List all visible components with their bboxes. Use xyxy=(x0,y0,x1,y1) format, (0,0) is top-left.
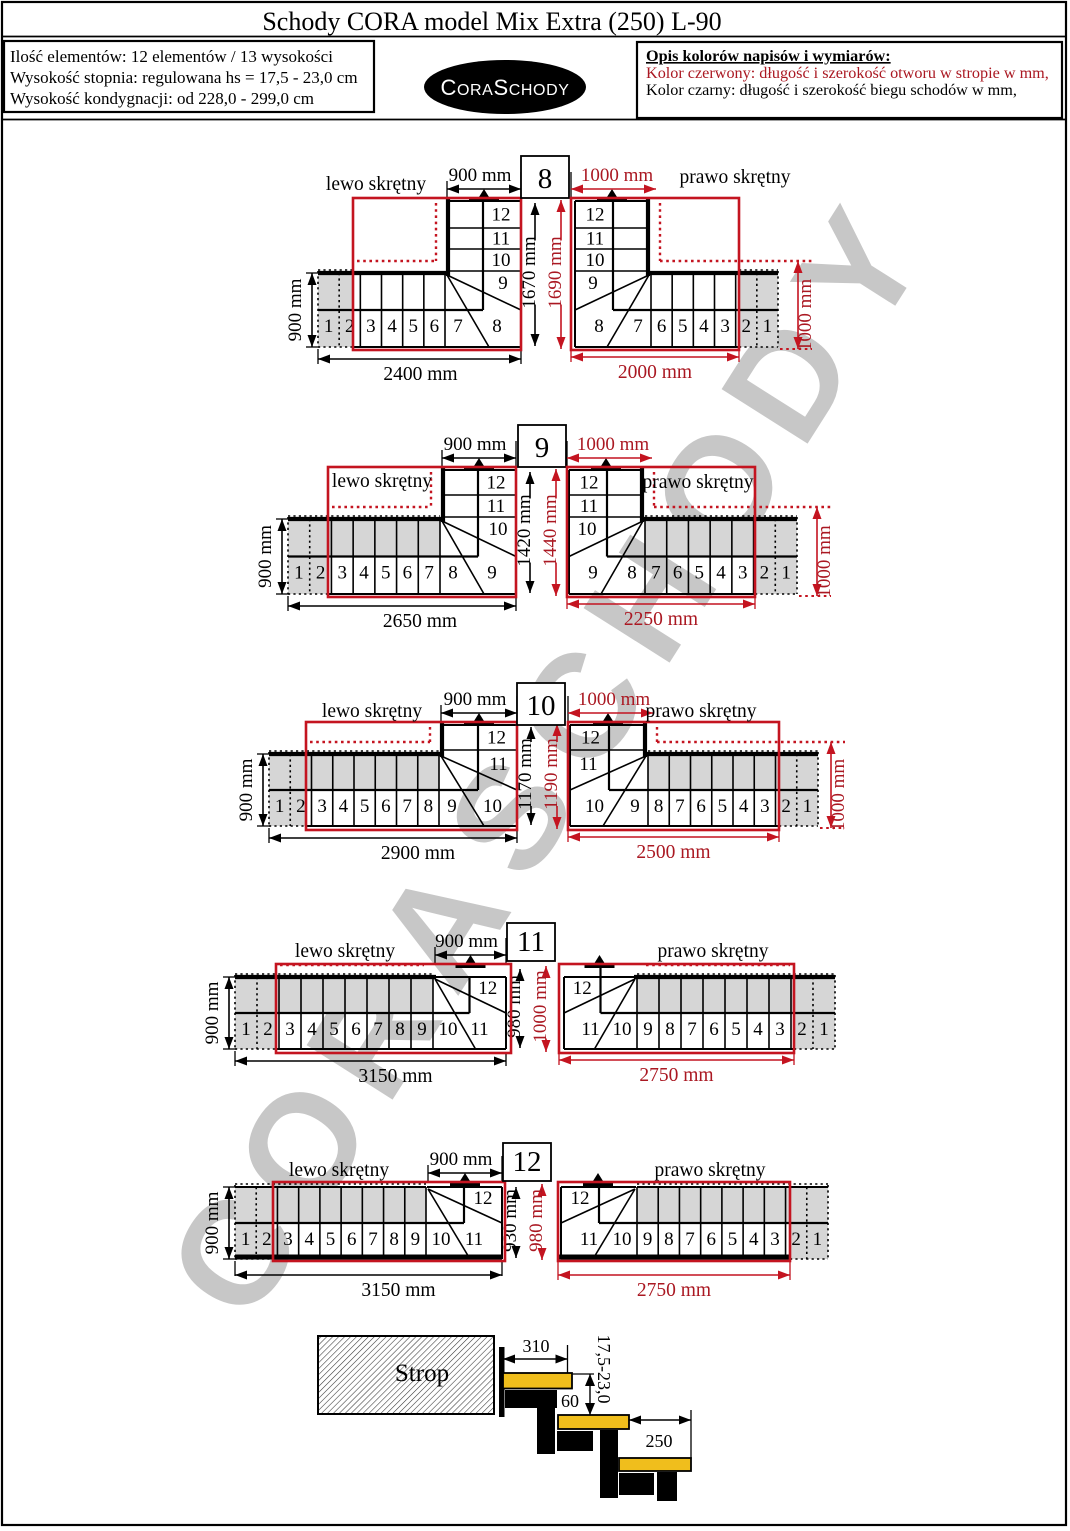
svg-text:11: 11 xyxy=(517,926,545,958)
svg-text:4: 4 xyxy=(739,796,749,817)
svg-text:9: 9 xyxy=(588,273,598,294)
svg-text:980 mm: 980 mm xyxy=(504,975,525,1038)
svg-text:7: 7 xyxy=(373,1019,383,1040)
svg-text:900 mm: 900 mm xyxy=(435,931,498,952)
svg-text:4: 4 xyxy=(699,316,709,337)
svg-text:11: 11 xyxy=(489,754,507,775)
svg-text:3150 mm: 3150 mm xyxy=(361,1280,435,1301)
svg-text:3: 3 xyxy=(770,1229,780,1250)
svg-text:2: 2 xyxy=(296,796,306,817)
svg-text:lewo skrętny: lewo skrętny xyxy=(289,1160,389,1181)
svg-text:6: 6 xyxy=(347,1229,357,1250)
svg-text:2400 mm: 2400 mm xyxy=(383,364,457,385)
svg-text:6: 6 xyxy=(403,563,413,584)
svg-text:12: 12 xyxy=(487,473,506,494)
svg-text:2: 2 xyxy=(262,1229,272,1250)
svg-text:lewo skrętny: lewo skrętny xyxy=(295,941,395,962)
svg-text:2: 2 xyxy=(263,1019,273,1040)
svg-text:900 mm: 900 mm xyxy=(444,689,507,710)
svg-text:250: 250 xyxy=(646,1431,673,1451)
svg-text:9: 9 xyxy=(498,273,508,294)
svg-text:4: 4 xyxy=(749,1229,759,1250)
svg-text:8: 8 xyxy=(665,1019,675,1040)
svg-text:11: 11 xyxy=(579,754,597,775)
svg-text:12: 12 xyxy=(474,1188,493,1209)
svg-text:5: 5 xyxy=(329,1019,339,1040)
svg-text:2: 2 xyxy=(742,316,752,337)
svg-text:6: 6 xyxy=(351,1019,361,1040)
svg-text:2250 mm: 2250 mm xyxy=(624,609,698,630)
svg-text:lewo skrętny: lewo skrętny xyxy=(322,701,422,722)
svg-text:17,5-23,0: 17,5-23,0 xyxy=(594,1335,614,1404)
svg-text:900 mm: 900 mm xyxy=(285,278,306,341)
svg-text:3: 3 xyxy=(338,563,348,584)
svg-text:1190 mm: 1190 mm xyxy=(541,738,562,810)
svg-text:2750 mm: 2750 mm xyxy=(639,1065,713,1086)
svg-text:2900 mm: 2900 mm xyxy=(381,843,455,864)
svg-text:11: 11 xyxy=(465,1229,483,1250)
svg-text:10: 10 xyxy=(585,796,604,817)
svg-text:900 mm: 900 mm xyxy=(430,1149,493,1170)
svg-text:9: 9 xyxy=(535,432,550,464)
svg-text:8: 8 xyxy=(654,796,664,817)
svg-text:11: 11 xyxy=(581,1019,599,1040)
svg-text:980 mm: 980 mm xyxy=(526,1189,547,1252)
svg-text:7: 7 xyxy=(675,796,685,817)
svg-text:12: 12 xyxy=(487,728,506,749)
svg-text:900 mm: 900 mm xyxy=(255,525,276,588)
svg-text:3: 3 xyxy=(720,316,730,337)
svg-text:1: 1 xyxy=(813,1229,823,1250)
svg-text:4: 4 xyxy=(716,563,726,584)
svg-text:lewo skrętny: lewo skrętny xyxy=(326,174,426,195)
svg-text:900 mm: 900 mm xyxy=(236,758,257,821)
svg-text:10: 10 xyxy=(586,250,605,271)
svg-text:prawo skrętny: prawo skrętny xyxy=(657,941,768,962)
svg-text:9: 9 xyxy=(643,1019,653,1040)
svg-text:1000 mm: 1000 mm xyxy=(530,970,551,1043)
svg-text:1690 mm: 1690 mm xyxy=(545,236,566,309)
svg-text:12: 12 xyxy=(581,728,600,749)
svg-text:4: 4 xyxy=(307,1019,317,1040)
svg-text:1: 1 xyxy=(781,563,791,584)
svg-text:4: 4 xyxy=(359,563,369,584)
svg-text:5: 5 xyxy=(728,1229,738,1250)
svg-text:10: 10 xyxy=(489,519,508,540)
svg-text:11: 11 xyxy=(580,1229,598,1250)
svg-text:12: 12 xyxy=(492,205,511,226)
svg-text:7: 7 xyxy=(687,1019,697,1040)
svg-text:7: 7 xyxy=(685,1229,695,1250)
svg-text:9: 9 xyxy=(487,563,497,584)
svg-text:Schody CORA model Mix Extra (2: Schody CORA model Mix Extra (250) L-90 xyxy=(262,7,721,36)
svg-text:6: 6 xyxy=(381,796,391,817)
svg-text:10: 10 xyxy=(578,519,597,540)
svg-text:1: 1 xyxy=(241,1229,251,1250)
svg-text:60: 60 xyxy=(561,1391,579,1411)
svg-text:1: 1 xyxy=(803,796,813,817)
svg-text:6: 6 xyxy=(657,316,667,337)
svg-text:Wysokość kondygnacji: od 228,0: Wysokość kondygnacji: od 228,0 - 299,0 c… xyxy=(10,89,314,108)
svg-text:Wysokość stopnia: regulowana: Wysokość stopnia: regulowana hs = 17,5 -… xyxy=(10,68,358,87)
svg-text:5: 5 xyxy=(381,563,391,584)
svg-text:1000 mm: 1000 mm xyxy=(578,689,651,710)
svg-text:5: 5 xyxy=(718,796,728,817)
svg-text:10: 10 xyxy=(492,250,511,271)
svg-text:1: 1 xyxy=(294,563,304,584)
svg-text:7: 7 xyxy=(368,1229,378,1250)
svg-text:9: 9 xyxy=(447,796,457,817)
svg-text:900 mm: 900 mm xyxy=(449,165,512,186)
svg-text:1440 mm: 1440 mm xyxy=(540,494,561,567)
svg-text:2: 2 xyxy=(791,1229,801,1250)
svg-text:prawo skrętny: prawo skrętny xyxy=(645,701,756,722)
svg-text:7: 7 xyxy=(402,796,412,817)
svg-text:900 mm: 900 mm xyxy=(202,1191,223,1254)
svg-text:11: 11 xyxy=(487,496,505,517)
svg-text:1: 1 xyxy=(763,316,773,337)
svg-text:10: 10 xyxy=(613,1229,632,1250)
svg-text:6: 6 xyxy=(696,796,706,817)
svg-text:11: 11 xyxy=(470,1019,488,1040)
svg-text:310: 310 xyxy=(523,1336,550,1356)
svg-text:8: 8 xyxy=(389,1229,399,1250)
svg-text:1: 1 xyxy=(241,1019,251,1040)
svg-text:8: 8 xyxy=(448,563,458,584)
svg-text:3: 3 xyxy=(317,796,327,817)
svg-text:5: 5 xyxy=(731,1019,741,1040)
svg-text:9: 9 xyxy=(411,1229,421,1250)
svg-text:10: 10 xyxy=(483,796,502,817)
svg-text:1000 mm: 1000 mm xyxy=(828,759,849,832)
svg-text:6: 6 xyxy=(673,563,683,584)
svg-text:7: 7 xyxy=(633,316,643,337)
svg-text:4: 4 xyxy=(387,316,397,337)
svg-text:3: 3 xyxy=(285,1019,295,1040)
svg-text:11: 11 xyxy=(492,229,510,250)
svg-text:5: 5 xyxy=(678,316,688,337)
svg-text:prawo skrętny: prawo skrętny xyxy=(654,1160,765,1181)
svg-text:Strop: Strop xyxy=(395,1360,449,1387)
svg-text:10: 10 xyxy=(432,1229,451,1250)
svg-text:lewo skrętny: lewo skrętny xyxy=(332,471,432,492)
svg-text:4: 4 xyxy=(305,1229,315,1250)
svg-text:900 mm: 900 mm xyxy=(444,434,507,455)
svg-text:1000 mm: 1000 mm xyxy=(814,525,835,598)
svg-text:12: 12 xyxy=(580,473,599,494)
svg-text:prawo skrętny: prawo skrętny xyxy=(642,472,753,493)
svg-text:8: 8 xyxy=(538,163,553,195)
svg-text:2750 mm: 2750 mm xyxy=(637,1280,711,1301)
svg-text:3: 3 xyxy=(760,796,770,817)
svg-text:Ilość elementów: 12 elementów: Ilość elementów: 12 elementów / 13 wysok… xyxy=(10,47,333,66)
svg-text:12: 12 xyxy=(478,978,497,999)
svg-text:Kolor czerwony: długość i szer: Kolor czerwony: długość i szerokość otwo… xyxy=(646,64,1049,82)
svg-text:8: 8 xyxy=(395,1019,405,1040)
svg-text:2000 mm: 2000 mm xyxy=(618,362,692,383)
svg-text:1000 mm: 1000 mm xyxy=(581,165,654,186)
svg-text:1000 mm: 1000 mm xyxy=(795,279,816,352)
svg-text:9: 9 xyxy=(630,796,640,817)
svg-text:2: 2 xyxy=(760,563,770,584)
svg-text:3: 3 xyxy=(283,1229,293,1250)
svg-text:prawo skrętny: prawo skrętny xyxy=(679,167,790,188)
svg-text:1: 1 xyxy=(819,1019,829,1040)
svg-text:9: 9 xyxy=(643,1229,653,1250)
svg-text:3: 3 xyxy=(738,563,748,584)
svg-text:8: 8 xyxy=(492,316,502,337)
svg-text:1: 1 xyxy=(324,316,334,337)
svg-text:11: 11 xyxy=(586,229,604,250)
svg-text:Kolor czarny: długość i szerok: Kolor czarny: długość i szerokość biegu … xyxy=(646,81,1017,99)
svg-text:4: 4 xyxy=(753,1019,763,1040)
svg-text:3: 3 xyxy=(775,1019,785,1040)
svg-text:5: 5 xyxy=(695,563,705,584)
svg-text:10: 10 xyxy=(439,1019,458,1040)
svg-text:11: 11 xyxy=(580,496,598,517)
svg-text:2500 mm: 2500 mm xyxy=(636,842,710,863)
svg-text:12: 12 xyxy=(573,978,592,999)
svg-text:12: 12 xyxy=(586,205,605,226)
svg-text:2: 2 xyxy=(797,1019,807,1040)
svg-text:7: 7 xyxy=(651,563,661,584)
svg-text:930 mm: 930 mm xyxy=(500,1189,521,1252)
svg-text:Opis kolorów napisów i wymiaró: Opis kolorów napisów i wymiarów: xyxy=(646,47,891,65)
svg-text:8: 8 xyxy=(664,1229,674,1250)
svg-text:8: 8 xyxy=(424,796,434,817)
svg-text:1: 1 xyxy=(275,796,285,817)
svg-text:12: 12 xyxy=(513,1146,542,1178)
svg-text:7: 7 xyxy=(424,563,434,584)
svg-text:6: 6 xyxy=(430,316,440,337)
svg-text:8: 8 xyxy=(594,316,604,337)
svg-text:9: 9 xyxy=(417,1019,427,1040)
svg-text:12: 12 xyxy=(571,1188,590,1209)
svg-text:8: 8 xyxy=(627,563,637,584)
svg-text:6: 6 xyxy=(707,1229,717,1250)
svg-text:2: 2 xyxy=(781,796,791,817)
svg-text:2: 2 xyxy=(316,563,326,584)
svg-text:1000 mm: 1000 mm xyxy=(577,434,650,455)
svg-text:2650 mm: 2650 mm xyxy=(383,611,457,632)
svg-text:7: 7 xyxy=(453,316,463,337)
svg-text:3: 3 xyxy=(366,316,376,337)
svg-text:5: 5 xyxy=(409,316,419,337)
svg-text:6: 6 xyxy=(709,1019,719,1040)
svg-text:3150 mm: 3150 mm xyxy=(358,1066,432,1087)
svg-text:10: 10 xyxy=(613,1019,632,1040)
svg-text:5: 5 xyxy=(360,796,370,817)
svg-text:5: 5 xyxy=(326,1229,336,1250)
svg-text:900 mm: 900 mm xyxy=(202,981,223,1044)
svg-text:4: 4 xyxy=(339,796,349,817)
svg-text:10: 10 xyxy=(527,690,556,722)
svg-text:9: 9 xyxy=(588,563,598,584)
